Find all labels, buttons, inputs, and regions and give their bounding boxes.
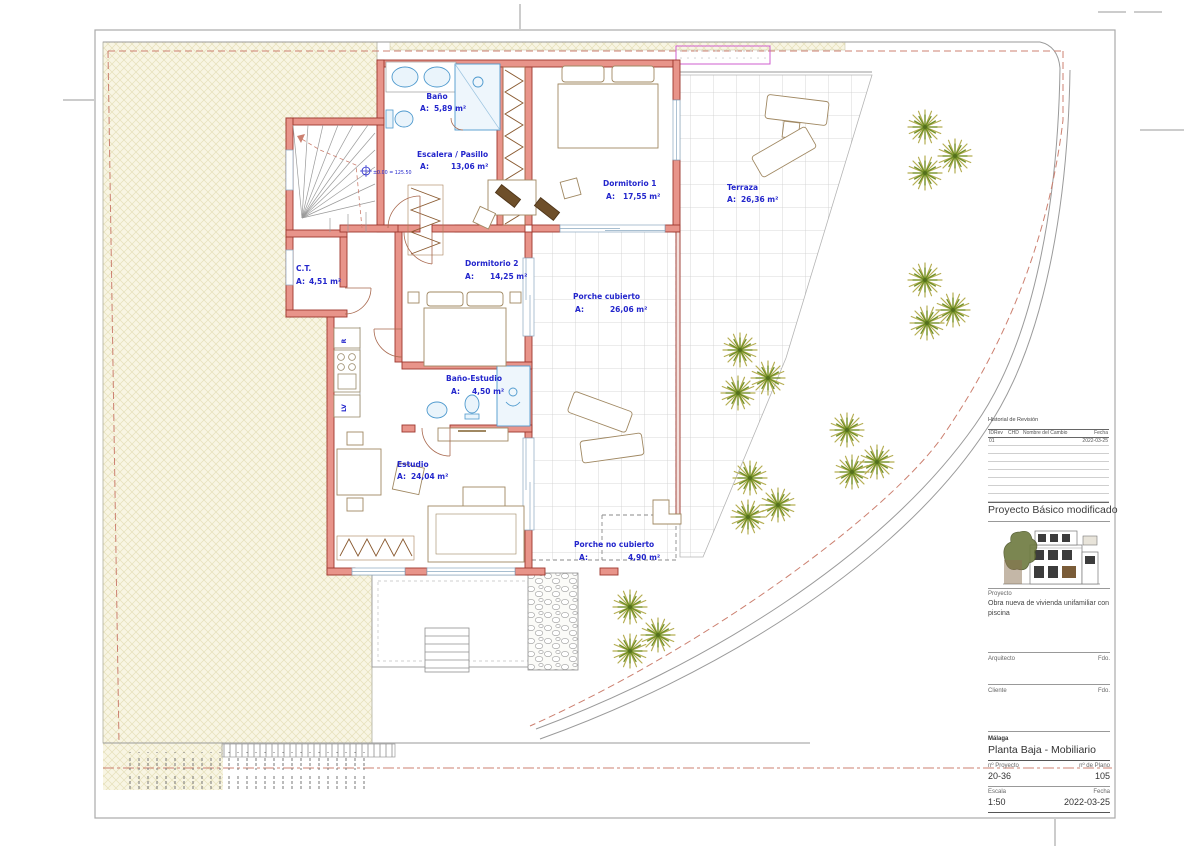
svg-text:Baño: Baño [426,92,447,101]
svg-text:Dormitorio 2: Dormitorio 2 [465,259,518,268]
svg-text:Dormitorio 1: Dormitorio 1 [603,179,656,188]
sofa [428,506,524,562]
fridge [334,328,360,348]
tree [908,110,942,144]
svg-text:A:26,36 m²: A:26,36 m² [727,195,778,204]
dining-table [337,449,381,495]
dishwasher-letter: LV [341,404,348,412]
fence-row [128,752,368,770]
tree [613,590,647,624]
tree [721,376,755,410]
svg-text:Estudio: Estudio [397,460,429,469]
tree [908,263,942,297]
tree [723,333,757,367]
svg-text:A:24,04 m²: A:24,04 m² [397,472,448,481]
drawing-sheet: Baño A:5,89 m² Escalera / Pasillo A:13,0… [0,0,1200,849]
tree [751,361,785,395]
overhang-outline [676,46,770,64]
fridge-letter: R [341,338,348,343]
svg-text:A:5,89 m²: A:5,89 m² [420,104,466,113]
tree [761,488,795,522]
tree [910,306,944,340]
sink [424,67,450,87]
toilet [465,395,479,413]
tree [860,445,894,479]
tree [641,618,675,652]
svg-text:Baño-Estudio: Baño-Estudio [446,374,502,383]
shower [455,64,500,130]
svg-text:±0.00 = 125.50: ±0.00 = 125.50 [373,170,412,176]
building-elevation [1003,531,1100,584]
svg-text:C.T.: C.T. [296,264,311,273]
tree [938,139,972,173]
floor-plan-drawing: Baño A:5,89 m² Escalera / Pasillo A:13,0… [0,0,1200,849]
svg-text:Porche cubierto: Porche cubierto [573,292,640,301]
svg-text:A:4,51 m²: A:4,51 m² [296,277,341,286]
sink [392,67,418,87]
svg-text:Escalera / Pasillo: Escalera / Pasillo [417,150,488,159]
tree [733,461,767,495]
tree [613,634,647,668]
svg-text:Porche no cubierto: Porche no cubierto [574,540,654,549]
svg-text:A:4,50 m²: A:4,50 m² [451,387,504,396]
svg-text:Terraza: Terraza [727,183,758,192]
tree [830,413,864,447]
exterior-stairs [425,628,469,672]
stone-path [528,573,578,670]
tree [908,156,942,190]
tv-console [438,428,508,441]
tree [835,455,869,489]
tree [731,500,765,534]
svg-text:A:17,55 m²: A:17,55 m² [606,192,660,201]
toilet [386,110,413,128]
tree [936,293,970,327]
sink [427,402,447,418]
fence-row [128,771,368,789]
